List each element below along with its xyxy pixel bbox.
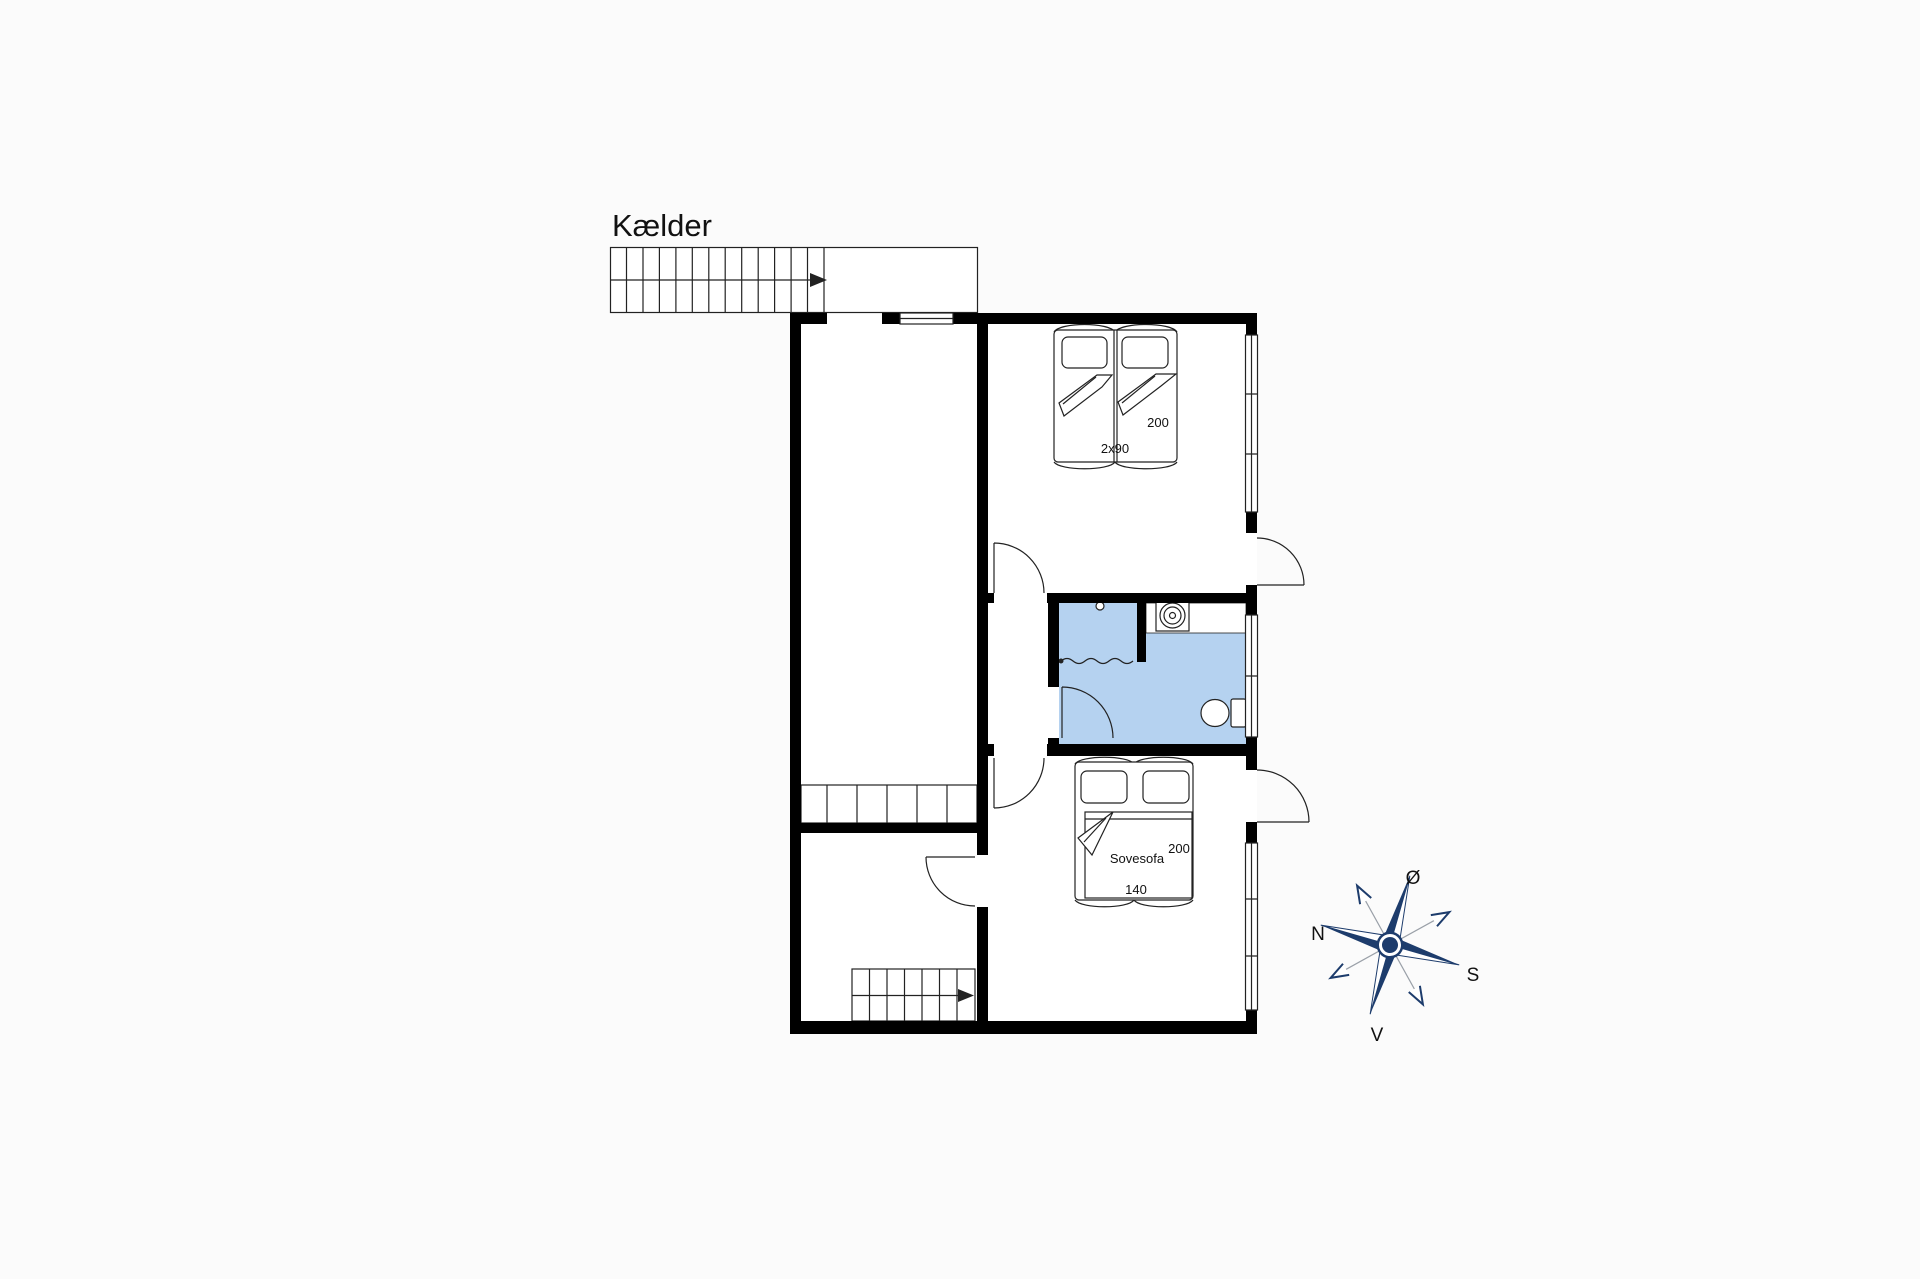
sink-icon [1156,600,1189,631]
wall-top-segment [953,313,1257,324]
sofa-bed-name-label: Sovesofa [1110,851,1165,866]
wall-bathroom-left [1048,603,1059,687]
compass-west-label: V [1371,1025,1384,1046]
compass-east-label: Ø [1406,868,1421,889]
floorplan-page: Kælder 200 2x90 Sovesofa 200 140 Ø N S V [0,0,1920,1279]
pillow [1062,337,1107,368]
bedroom-exterior-door [1257,538,1304,585]
wall-left-outer [790,313,801,1034]
wall-storage-divider [790,823,977,833]
toilet-icon [1201,699,1246,727]
wall-bottom-outer [790,1021,1257,1034]
compass-south-label: S [1467,965,1480,986]
sofa-bed-length-label: 200 [1168,841,1190,856]
wall-right-segment [1246,1010,1257,1034]
wall-bathroom-bottom [1047,744,1246,756]
wall-interior-vertical [977,907,988,1021]
floor-plan-canvas: Kælder 200 2x90 Sovesofa 200 140 Ø N S V [0,0,1920,1279]
wall-door-jamb [988,593,994,603]
pillow [1143,771,1189,803]
window-top [900,313,953,324]
compass-hub [1373,928,1406,961]
wall-door-jamb [988,744,994,756]
toilet-tank [1231,699,1246,727]
wall-interior-vertical [977,324,988,855]
wall-right-segment [1246,585,1257,615]
compass-north-label: N [1311,924,1325,945]
shower-head-icon [1096,602,1104,610]
double-bed-length-label: 200 [1147,415,1169,430]
toilet-bowl [1201,700,1229,727]
page-title: Kælder [612,208,712,243]
sofa-bed-width-label: 140 [1125,882,1147,897]
wall-right-segment [1246,313,1257,335]
sofa-room-exterior-door [1257,770,1309,822]
wall-bathroom-top [1047,593,1246,603]
window-bedroom [1246,335,1258,512]
wall-right-segment [1246,822,1257,843]
closet-unit [801,785,977,823]
wall-right-segment [1246,737,1257,770]
window-bathroom [1246,615,1258,737]
wall-bathroom-left [1048,738,1059,756]
wall-shower-stub [1137,603,1146,662]
window-sofa-room [1246,843,1258,1010]
wall-top-segment [882,313,900,324]
wall-right-segment [1246,512,1257,533]
double-bed-width-label: 2x90 [1101,441,1129,456]
entry-staircase [611,248,978,313]
pillow [1122,337,1168,368]
pillow [1081,771,1127,803]
compass-rose-icon: Ø N S V [1301,856,1479,1046]
basement-staircase [852,969,975,1021]
wall-top-segment [790,313,827,324]
